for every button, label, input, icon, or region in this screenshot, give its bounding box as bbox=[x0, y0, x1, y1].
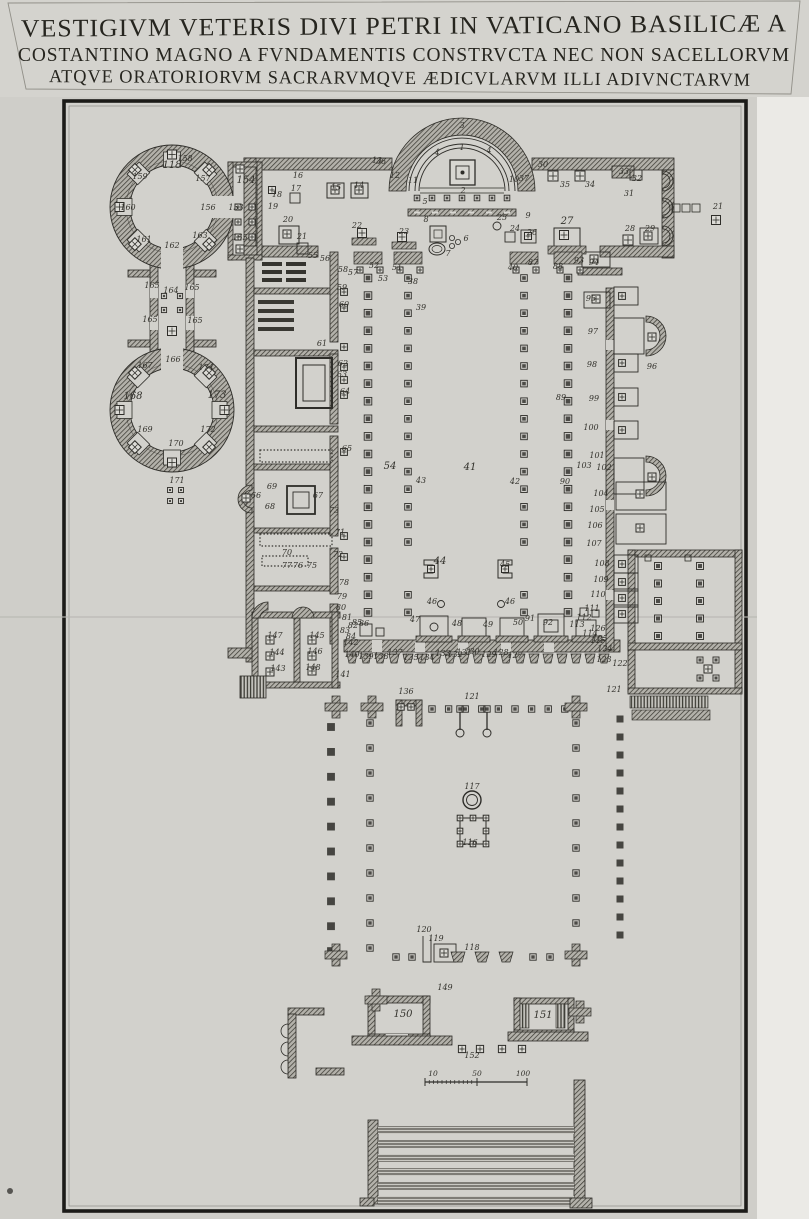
number-label: 165 bbox=[187, 316, 202, 325]
number-label: 137 bbox=[387, 648, 403, 657]
number-label: 127 bbox=[507, 651, 523, 660]
number-label: 145 bbox=[309, 631, 324, 640]
number-label: 118 bbox=[464, 943, 479, 952]
number-label: 61 bbox=[317, 339, 327, 348]
number-label: 77 bbox=[282, 561, 293, 570]
number-label: 11 bbox=[408, 176, 418, 185]
number-label: 26 bbox=[526, 228, 537, 237]
number-label: 10 bbox=[509, 175, 519, 184]
number-label: 93 bbox=[574, 256, 584, 265]
number-label: 111 bbox=[584, 604, 599, 613]
number-label: 123 bbox=[596, 655, 611, 664]
scale-label: 50 bbox=[472, 1069, 482, 1078]
number-label: 167 bbox=[137, 361, 153, 370]
number-label: 68 bbox=[265, 502, 275, 511]
number-label: 107 bbox=[586, 539, 602, 548]
number-label: 166 bbox=[165, 355, 180, 364]
number-label: 98 bbox=[587, 360, 597, 369]
number-label: 97 bbox=[588, 327, 599, 336]
number-label: 41 bbox=[463, 462, 477, 473]
number-label: 9 bbox=[525, 211, 530, 220]
number-label: 122 bbox=[612, 659, 627, 668]
number-label: 138 bbox=[373, 652, 388, 661]
number-label: 159 bbox=[132, 172, 147, 181]
number-label: 121 bbox=[464, 692, 479, 701]
number-label: 121 bbox=[606, 685, 621, 694]
number-label: 32 bbox=[632, 174, 642, 183]
number-label: 53 bbox=[378, 274, 388, 283]
title-line-1: VESTIGIVM VETERIS DIVI PETRI IN VATICANO… bbox=[21, 10, 787, 42]
number-label: 29 bbox=[644, 224, 655, 233]
number-label: 35 bbox=[560, 180, 570, 189]
number-label: 141 bbox=[335, 670, 350, 679]
number-label: 164 bbox=[163, 286, 178, 295]
number-label: 160 bbox=[120, 203, 135, 212]
number-label: 102 bbox=[596, 463, 611, 472]
number-label: 54 bbox=[384, 461, 397, 472]
number-label: 96 bbox=[647, 362, 657, 371]
number-label: 87 bbox=[528, 258, 539, 267]
number-label: 28 bbox=[624, 224, 635, 233]
number-label: 169 bbox=[137, 425, 152, 434]
number-label: 39 bbox=[416, 303, 426, 312]
number-label: 144 bbox=[269, 648, 284, 657]
number-label: 104 bbox=[593, 489, 608, 498]
number-label: 165 bbox=[144, 281, 159, 290]
basilica-floor-plan: VESTIGIVM VETERIS DIVI PETRI IN VATICANO… bbox=[0, 0, 809, 1219]
number-label: 30 bbox=[538, 160, 548, 169]
number-label: 34 bbox=[585, 180, 595, 189]
title-block: VESTIGIVM VETERIS DIVI PETRI IN VATICANO… bbox=[8, 1, 800, 94]
atrium-steps-strip bbox=[630, 696, 708, 708]
number-label: 173 bbox=[207, 390, 226, 401]
number-label: 20 bbox=[282, 215, 293, 224]
number-label: 40 bbox=[507, 263, 518, 272]
number-label: 120 bbox=[416, 925, 431, 934]
number-label: 22 bbox=[351, 221, 362, 230]
scale-label: 10 bbox=[428, 1069, 438, 1078]
number-label: 174 bbox=[198, 363, 213, 372]
number-label: 73 bbox=[329, 506, 339, 515]
number-label: 91 bbox=[525, 614, 535, 623]
number-label: 165 bbox=[142, 315, 157, 324]
number-label: 86 bbox=[359, 619, 369, 628]
number-label: 18 bbox=[272, 190, 282, 199]
number-label: 14 bbox=[354, 181, 364, 190]
number-label: 125 bbox=[592, 634, 607, 643]
number-label: 72 bbox=[333, 550, 343, 559]
number-label: 124 bbox=[597, 644, 612, 653]
number-label: 25 bbox=[496, 213, 507, 222]
number-label: 19 bbox=[268, 202, 278, 211]
number-label: 42 bbox=[509, 477, 520, 486]
number-label: 161 bbox=[136, 235, 151, 244]
title-line-2: COSTANTINO MAGNO A FVNDAMENTIS CONSTRVCT… bbox=[18, 44, 790, 66]
number-label: 48 bbox=[451, 619, 462, 628]
number-label: 170 bbox=[168, 439, 183, 448]
number-label: 157 bbox=[195, 174, 211, 183]
number-label: 62 bbox=[338, 359, 348, 368]
number-label: 147 bbox=[267, 631, 283, 640]
number-label: 89 bbox=[556, 393, 566, 402]
ink-speck bbox=[7, 1188, 13, 1194]
number-label: 69 bbox=[267, 482, 277, 491]
number-label: 21 bbox=[296, 232, 307, 241]
number-label: 27 bbox=[560, 216, 574, 227]
number-label: 110 bbox=[590, 590, 605, 599]
number-label: 67 bbox=[313, 491, 324, 500]
number-label: 154 bbox=[236, 175, 255, 186]
page-right-edge bbox=[757, 97, 809, 1219]
number-label: 64 bbox=[340, 387, 350, 396]
number-label: 146 bbox=[307, 647, 322, 656]
number-label: 71 bbox=[335, 528, 345, 537]
number-label: 148 bbox=[305, 663, 320, 672]
number-label: 15 bbox=[331, 183, 341, 192]
number-label: 113 bbox=[569, 620, 584, 629]
number-label: 155 bbox=[232, 233, 247, 242]
title-line-3: ATQVE ORATORIORVM SACRARVMQVE ÆDICVLARVM… bbox=[49, 67, 751, 91]
number-label: 63 bbox=[337, 370, 347, 379]
south-steps-block bbox=[240, 676, 266, 698]
number-label: 6 bbox=[463, 234, 468, 243]
number-label: 31 bbox=[624, 189, 634, 198]
number-label: 70 bbox=[282, 548, 292, 557]
number-label: 108 bbox=[594, 559, 609, 568]
scale-label: 100 bbox=[516, 1069, 531, 1078]
number-label: 65 bbox=[342, 444, 352, 453]
number-label: 135 bbox=[403, 653, 418, 662]
number-label: 43 bbox=[415, 476, 426, 485]
number-label: 171 bbox=[169, 476, 184, 485]
number-label: 50 bbox=[513, 618, 523, 627]
number-label: 103 bbox=[576, 461, 591, 470]
number-label: 140 bbox=[344, 650, 359, 659]
number-label: 3 bbox=[459, 121, 464, 130]
number-label: 165 bbox=[184, 283, 199, 292]
number-label: 105 bbox=[589, 505, 604, 514]
number-label: 21 bbox=[712, 202, 723, 211]
number-label: 142 bbox=[343, 638, 358, 647]
number-label: 158 bbox=[177, 154, 192, 163]
number-label: 106 bbox=[587, 521, 602, 530]
number-label: 152 bbox=[464, 1051, 479, 1060]
number-label: 51 bbox=[392, 263, 402, 272]
number-label: 8 bbox=[423, 215, 428, 224]
number-label: 24 bbox=[509, 224, 520, 233]
number-label: 139 bbox=[358, 652, 373, 661]
number-label: 95 bbox=[586, 294, 596, 303]
number-label: 58 bbox=[338, 265, 348, 274]
number-label: 151 bbox=[533, 1010, 552, 1021]
number-label: 172 bbox=[200, 425, 215, 434]
number-label: 117 bbox=[464, 782, 480, 791]
number-label: 17 bbox=[291, 184, 302, 193]
number-label: 143 bbox=[270, 664, 285, 673]
number-label: 101 bbox=[589, 451, 604, 460]
number-label: 90 bbox=[560, 477, 570, 486]
number-label: 23 bbox=[398, 227, 409, 236]
engraving-page: VESTIGIVM VETERIS DIVI PETRI IN VATICANO… bbox=[0, 0, 809, 1219]
number-label: 119 bbox=[428, 934, 443, 943]
number-label: 46 bbox=[504, 597, 515, 606]
number-label: 46 bbox=[426, 597, 437, 606]
number-label: 59 bbox=[337, 283, 347, 292]
number-label: 134 bbox=[419, 653, 434, 662]
number-label: 133 bbox=[435, 649, 450, 658]
number-label: 88 bbox=[553, 262, 563, 271]
number-label: 126 bbox=[590, 624, 605, 633]
number-label: 79 bbox=[337, 592, 347, 601]
number-label: 153 bbox=[228, 203, 243, 212]
number-label: 49 bbox=[482, 620, 493, 629]
number-label: 37 bbox=[519, 174, 530, 183]
number-label: 16 bbox=[293, 171, 303, 180]
number-label: 156 bbox=[200, 203, 215, 212]
number-label: 116 bbox=[462, 838, 477, 847]
number-label: 1 bbox=[459, 143, 464, 152]
number-label: 168 bbox=[123, 391, 142, 402]
number-label: 44 bbox=[433, 556, 447, 567]
number-label: 80 bbox=[336, 603, 346, 612]
number-label: 149 bbox=[437, 983, 452, 992]
number-label: 100 bbox=[583, 423, 598, 432]
number-label: 52 bbox=[369, 261, 379, 270]
number-label: 56 bbox=[320, 254, 330, 263]
number-label: 162 bbox=[164, 241, 179, 250]
number-label: 2 bbox=[459, 186, 465, 195]
number-label: 45 bbox=[499, 560, 510, 569]
number-label: 78 bbox=[339, 578, 349, 587]
number-label: 109 bbox=[593, 575, 608, 584]
number-label: 33 bbox=[619, 167, 629, 176]
number-label: 55 bbox=[308, 251, 318, 260]
number-label: 57 bbox=[348, 268, 359, 277]
number-label: 150 bbox=[393, 1009, 413, 1020]
number-label: 38 bbox=[408, 277, 418, 286]
number-label: 163 bbox=[192, 231, 207, 240]
number-label: 94 bbox=[589, 258, 599, 267]
number-label: 4 bbox=[433, 148, 439, 157]
number-label: 76 bbox=[293, 561, 303, 570]
number-label: 12 bbox=[390, 171, 400, 180]
number-label: 75 bbox=[307, 561, 317, 570]
number-label: 36 bbox=[376, 157, 386, 166]
number-label: 129 bbox=[481, 650, 496, 659]
number-label: 92 bbox=[543, 618, 553, 627]
number-label: 5 bbox=[422, 197, 427, 206]
number-label: 60 bbox=[339, 300, 349, 309]
number-label: 99 bbox=[589, 394, 599, 403]
number-label: 136 bbox=[398, 687, 413, 696]
number-label: 66 bbox=[251, 491, 261, 500]
number-label: 4 bbox=[485, 146, 491, 155]
number-label: 47 bbox=[409, 615, 421, 624]
